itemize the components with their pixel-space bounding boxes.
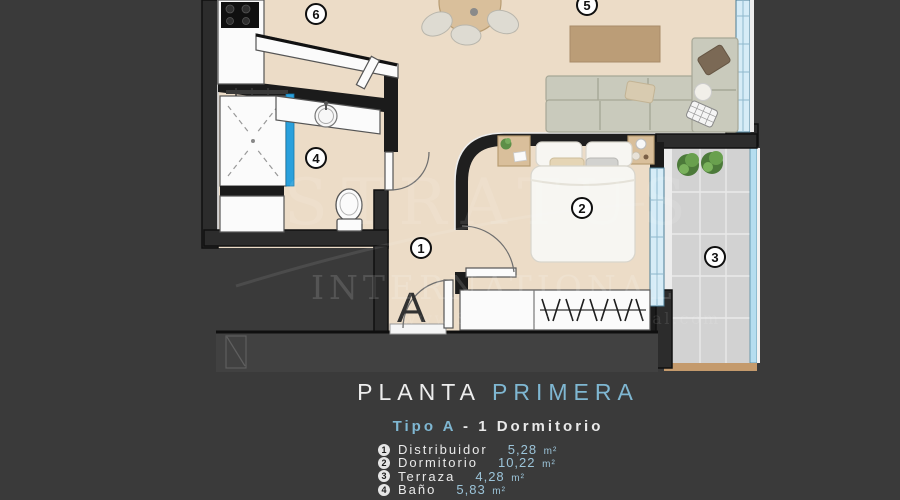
rug	[570, 26, 660, 62]
legend-row: 3Terraza4,28 m²	[378, 470, 644, 483]
subtitle-tipo: Tipo A	[393, 418, 456, 435]
room-badge-1: 1	[410, 237, 432, 259]
terrace-glass-rail	[750, 148, 757, 363]
room-badge-2: 2	[571, 197, 593, 219]
bedroom-window	[650, 168, 664, 306]
legend-room-area: 5,83 m²	[456, 482, 506, 497]
legend-bullet: 1	[378, 444, 390, 456]
page-subtitle: Tipo A - 1 Dormitorio	[352, 418, 644, 435]
floorplan-drawing	[0, 0, 900, 375]
vanity	[220, 196, 284, 232]
title-block: PLANTA PRIMERA Tipo A - 1 Dormitorio 1Di…	[352, 379, 644, 496]
subtitle-dormitorio: - 1 Dormitorio	[463, 418, 603, 435]
unit-letter: A	[397, 287, 426, 330]
legend-row: 2Dormitorio10,22 m²	[378, 456, 644, 469]
living-window	[736, 0, 754, 132]
room-badge-4: 4	[305, 147, 327, 169]
legend-bullet: 4	[378, 484, 390, 496]
wardrobe	[460, 290, 650, 330]
room-badge-3: 3	[704, 246, 726, 268]
cooktop	[221, 2, 259, 28]
floorplan-page: STRATUS INTERNATIONAL www.StratusInterna…	[0, 0, 900, 500]
legend-room-name: Baño	[398, 482, 436, 497]
room-badge-6: 6	[305, 3, 327, 25]
legend-row: 4Baño5,83 m²	[378, 483, 644, 496]
toilet	[336, 189, 362, 231]
legend-bullet: 3	[378, 470, 390, 482]
title-primera: PRIMERA	[492, 379, 639, 405]
legend-area-unit: m²	[492, 486, 506, 497]
legend-area-unit: m²	[542, 459, 556, 470]
title-planta: PLANTA	[357, 379, 480, 405]
legend-area-unit: m²	[511, 473, 525, 484]
legend-row: 1Distribuidor5,28 m²	[378, 443, 644, 456]
legend-bullet: 2	[378, 457, 390, 469]
room-legend: 1Distribuidor5,28 m²2Dormitorio10,22 m²3…	[352, 443, 644, 496]
page-title: PLANTA PRIMERA	[352, 379, 644, 406]
